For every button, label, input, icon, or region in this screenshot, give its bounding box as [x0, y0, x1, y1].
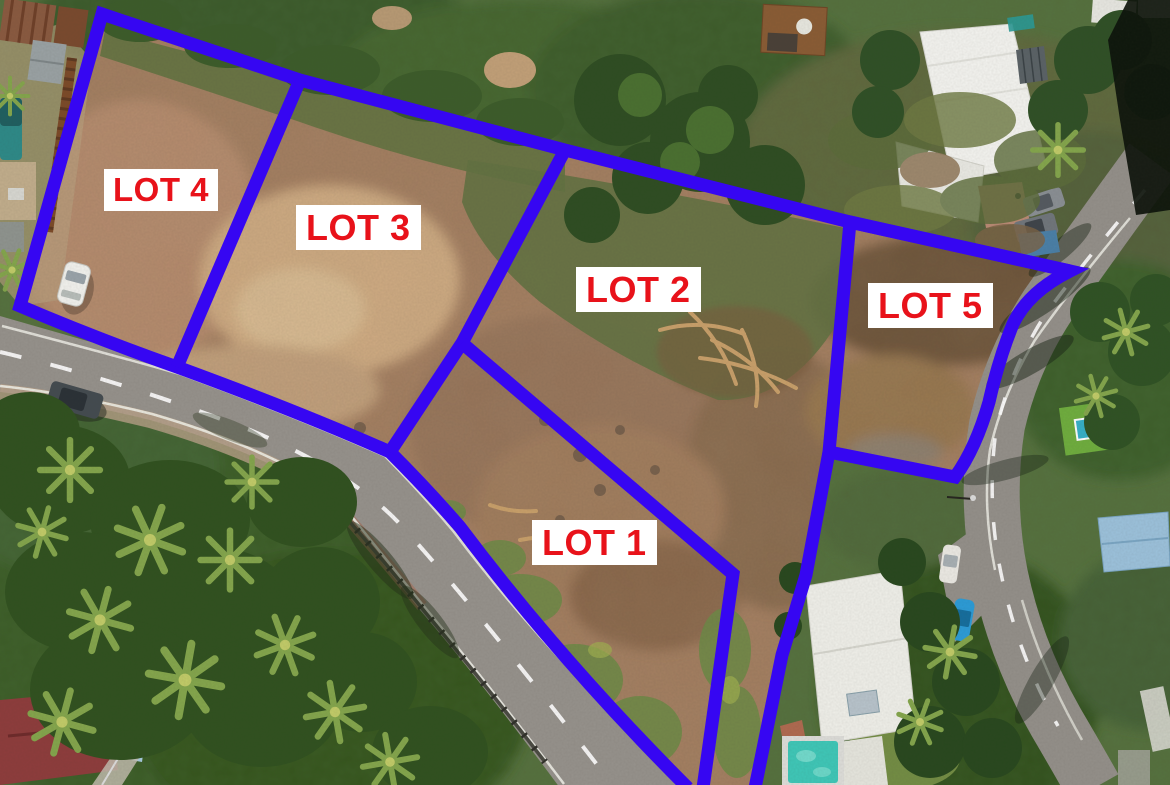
lot-2-label: LOT 2 [576, 267, 701, 312]
lot-1-label: LOT 1 [532, 520, 657, 565]
lot-5-label: LOT 5 [868, 283, 993, 328]
aerial-lot-map: LOT 4 LOT 3 LOT 2 LOT 5 LOT 1 [0, 0, 1170, 785]
lot-4-label: LOT 4 [104, 169, 218, 211]
lot-3-label: LOT 3 [296, 205, 421, 250]
aerial-photo [0, 0, 1170, 785]
